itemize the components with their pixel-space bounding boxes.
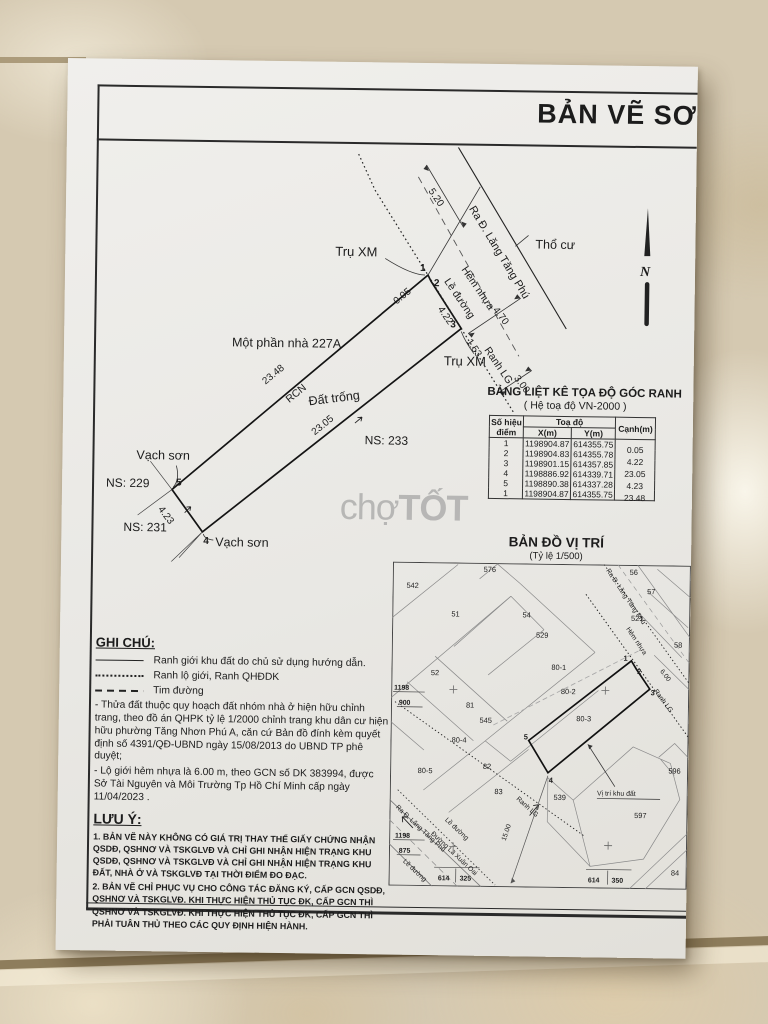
boundary-label: Ranh LG	[652, 688, 674, 714]
col-header-y: Y(m)	[571, 428, 615, 440]
cement-post-label: Trụ XM	[335, 244, 377, 260]
parcel-label: 80-3	[576, 714, 591, 723]
legend-item: Tim đường	[95, 684, 389, 699]
edge-length: 0.05	[616, 445, 655, 456]
legend-label: Ranh lộ giới, Ranh QHĐDK	[153, 670, 279, 683]
coordinate-table-title: BẢNG LIỆT KÊ TỌA ĐỘ GÓC RANH	[487, 386, 663, 400]
notes-title: GHI CHÚ:	[96, 634, 390, 653]
north-arrow-icon: N	[638, 208, 652, 326]
paint-mark-line	[157, 531, 203, 569]
location-map-title: BẢN ĐỒ VỊ TRÍ	[441, 533, 671, 551]
dimension-arrow	[511, 878, 516, 884]
point-label: 2	[637, 667, 641, 676]
grid-label: 875	[399, 848, 411, 855]
point-label: 5	[524, 732, 528, 741]
parcel-label: 539	[553, 793, 565, 802]
parcel-label: 56	[630, 568, 638, 577]
dimension-tie	[511, 775, 548, 883]
edge-length: 23.05	[615, 469, 654, 480]
leader-line	[587, 744, 615, 786]
location-map: 1198 900 1198 875 614 325 614 350 542 57…	[388, 562, 690, 890]
chotot-watermark: chợTỐT	[339, 486, 467, 530]
edge-length: 23.48	[615, 493, 654, 504]
street-edge-line	[452, 142, 569, 329]
edge-length-column: 0.05 4.22 23.05 4.23 23.48	[615, 439, 656, 501]
paint-mark-label: Vạch sơn	[215, 535, 269, 550]
grid-label: 614	[588, 877, 600, 884]
warning-item: 2. BẢN VẼ CHỈ PHỤC VỤ CHO CÔNG TÁC ĐĂNG …	[92, 881, 387, 934]
note-paragraph: - Lộ giới hẻm nhựa là 6.00 m, theo GCN s…	[94, 766, 389, 809]
survey-document-paper: BẢN VẼ SƠ N	[56, 58, 698, 959]
coordinate-table-subtitle: ( Hệ toạ độ VN-2000 )	[487, 399, 663, 413]
edge-length: 4.23	[615, 481, 654, 492]
notes-section: GHI CHÚ: Ranh giới khu đất do chủ sử dụn…	[92, 634, 390, 935]
parcel-label: 84	[671, 868, 679, 877]
legend-label: Tim đường	[153, 685, 204, 697]
warning-title: LƯU Ý:	[93, 810, 387, 830]
parcel-label: 80-5	[418, 766, 433, 775]
parcel-label: 576	[484, 565, 496, 574]
grid-label: 325	[460, 876, 472, 883]
edge-arrow	[355, 417, 362, 423]
watermark-suffix: TỐT	[398, 487, 468, 529]
grid-label: 614	[438, 875, 450, 882]
photo-of-survey-document: { "colors": { "paper": "#ecebe7", "tile"…	[0, 0, 768, 1024]
point-label: 3	[651, 688, 655, 697]
legend-dashed-line	[95, 689, 143, 692]
note-paragraph: - Thửa đất thuộc quy hoạch đất nhóm nhà …	[94, 699, 389, 767]
point-label: 4	[203, 536, 209, 547]
document-title: BẢN VẼ SƠ	[537, 99, 698, 134]
col-header-edge: Cạnh(m)	[615, 417, 655, 440]
residential-land-label: Thổ cư	[535, 238, 575, 253]
parcel-labels: 542 576 51 54 529 56 57 521 58 52 81 545…	[402, 564, 683, 878]
street-direction-label: Ra Đ. Lăng Tăng Phú	[604, 568, 646, 626]
col-header-point: Số hiệuđiểm	[489, 415, 523, 437]
dim-5-20: 5.20	[426, 187, 446, 210]
grid-label-lines	[391, 692, 634, 885]
legend-item: Ranh giới khu đất do chủ sử dụng hướng d…	[96, 654, 390, 669]
street-name-label: Đường Lã Xuân Oai	[429, 830, 478, 877]
boundary-label: Ranh LG	[481, 345, 515, 387]
parcel-label: 54	[522, 610, 530, 619]
parcel-label: 51	[451, 609, 459, 618]
parcel-label: 529	[536, 631, 548, 640]
parcel-label: 80-4	[452, 735, 467, 744]
watermark-prefix: chợ	[339, 486, 398, 528]
paint-mark-label: Vạch sơn	[136, 448, 190, 463]
coordinate-table: Số hiệuđiểm Toạ độ Cạnh(m) X(m) Y(m) 1 1…	[488, 415, 656, 501]
land-type-label: RCN	[284, 382, 309, 406]
legend-label: Ranh giới khu đất do chủ sử dụng hướng d…	[154, 655, 366, 669]
house-number-label: NS: 231	[123, 520, 167, 535]
grid-label: 900	[399, 700, 411, 707]
neighbor-house-label: Một phần nhà 227A	[232, 335, 342, 351]
point-label: 1	[420, 263, 426, 274]
parcel-label: 545	[480, 716, 492, 725]
vacant-land-label: Đất trống	[308, 388, 361, 408]
parcel-label: 80-1	[551, 663, 566, 672]
parcel-label: 82	[483, 762, 491, 771]
parcel-label: 81	[466, 701, 474, 710]
grid-label: 1198	[395, 833, 410, 840]
street-tick	[515, 235, 528, 246]
warning-item: 1. BẢN VẼ NÀY KHÔNG CÓ GIÁ TRỊ THAY THẾ …	[93, 830, 388, 883]
label-underline	[597, 798, 660, 799]
plot-location-label: Vị trí khu đất	[597, 788, 636, 798]
house-number-label: NS: 229	[106, 476, 150, 491]
dim-23-48: 23.48	[260, 362, 287, 387]
parcel-label: 596	[668, 766, 680, 775]
parcel-label: 57	[647, 587, 655, 596]
point-label: 5	[176, 478, 182, 489]
col-header-x: X(m)	[523, 427, 571, 439]
house-number-label: NS: 233	[365, 433, 409, 448]
parcel-label: 597	[634, 811, 646, 820]
road-edge-label: Lề đường	[401, 857, 429, 884]
boundary-label: Ranh LG	[515, 796, 540, 819]
point-label: 4	[549, 776, 554, 785]
legend-item: Ranh lộ giới, Ranh QHĐDK	[95, 669, 389, 684]
grid-label: 1198	[394, 685, 409, 692]
parcel-label: 80-2	[561, 687, 576, 696]
legend-solid-line	[96, 659, 144, 661]
road-edge-label: Lề đường	[443, 815, 471, 842]
dim-15-00: 15.00	[501, 823, 513, 842]
dim-23-05: 23.05	[310, 413, 337, 438]
north-letter: N	[639, 265, 651, 280]
grid-label: 350	[612, 878, 624, 885]
parcel-label: 83	[494, 787, 502, 796]
parcel-label: 58	[674, 640, 682, 649]
point-label: 1	[623, 654, 627, 663]
legend-dotted-line	[95, 674, 143, 677]
coordinate-table-block: BẢNG LIỆT KÊ TỌA ĐỘ GÓC RANH ( Hệ toạ độ…	[486, 386, 664, 501]
frame-border	[98, 84, 698, 94]
point-label: 2	[434, 278, 440, 289]
edge-length: 4.22	[616, 457, 655, 468]
parcel-label: 52	[431, 668, 439, 677]
parcel-label: 542	[406, 581, 418, 590]
